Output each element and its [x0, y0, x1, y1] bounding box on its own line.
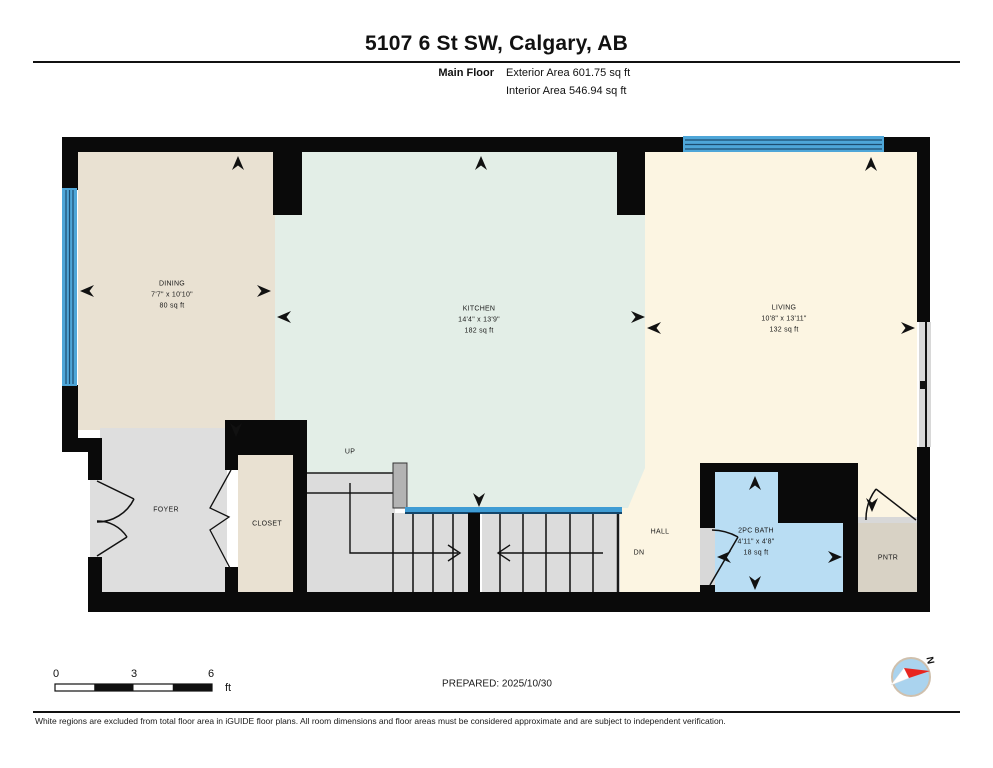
page-title: 5107 6 St SW, Calgary, AB [0, 32, 993, 56]
floor-plan-drawing [0, 0, 993, 768]
header-rule [33, 61, 960, 63]
hall-label: HALL [651, 529, 670, 536]
window-top [683, 136, 884, 152]
pantry-label: PNTR [878, 555, 898, 562]
prepared-date: PREPARED: 2025/10/30 [442, 679, 552, 690]
living-label: LIVING 10'8" x 13'11" 132 sq ft [761, 303, 806, 336]
foyer-label: FOYER [153, 507, 179, 514]
sliding-door-right [919, 322, 931, 447]
footer-rule [33, 711, 960, 713]
entry-threshold [90, 480, 102, 557]
bath-area: 18 sq ft [738, 548, 775, 559]
kitchen-area: 182 sq ft [458, 326, 500, 337]
living-name: LIVING [761, 303, 806, 314]
bath-name: 2PC BATH [738, 526, 775, 537]
dining-name: DINING [151, 279, 193, 290]
kitchen-name: KITCHEN [458, 304, 500, 315]
interior-area: Interior Area 546.94 sq ft [506, 85, 626, 97]
bath-label: 2PC BATH 4'11" x 4'8" 18 sq ft [738, 526, 775, 559]
stair-railing [405, 507, 622, 514]
scale-tick-6: 6 [208, 668, 214, 680]
dining-area: 80 sq ft [151, 301, 193, 312]
closet-label: CLOSET [252, 521, 282, 528]
scale-bar [55, 684, 212, 691]
scale-tick-0: 0 [53, 668, 59, 680]
bath-dimensions: 4'11" x 4'8" [738, 537, 775, 548]
exterior-area: Exterior Area 601.75 sq ft [506, 67, 630, 79]
kitchen-dimensions: 14'4" x 13'9" [458, 315, 500, 326]
window-left [62, 188, 77, 386]
stairs-up-landing [307, 473, 395, 592]
scale-tick-3: 3 [131, 668, 137, 680]
scale-unit: ft [225, 682, 231, 694]
floor-label: Main Floor [360, 67, 494, 79]
living-dimensions: 10'8" x 13'11" [761, 314, 806, 325]
stairs-up-label: UP [345, 449, 355, 456]
floor-plan-page: 5107 6 St SW, Calgary, AB Main Floor Ext… [0, 0, 993, 768]
dining-dimensions: 7'7" x 10'10" [151, 290, 193, 301]
stair-newel-post [393, 463, 407, 508]
disclaimer-text: White regions are excluded from total fl… [35, 716, 965, 726]
living-area: 132 sq ft [761, 325, 806, 336]
kitchen-label: KITCHEN 14'4" x 13'9" 182 sq ft [458, 304, 500, 337]
dining-label: DINING 7'7" x 10'10" 80 sq ft [151, 279, 193, 312]
stairs-down-label: DN [634, 550, 645, 557]
